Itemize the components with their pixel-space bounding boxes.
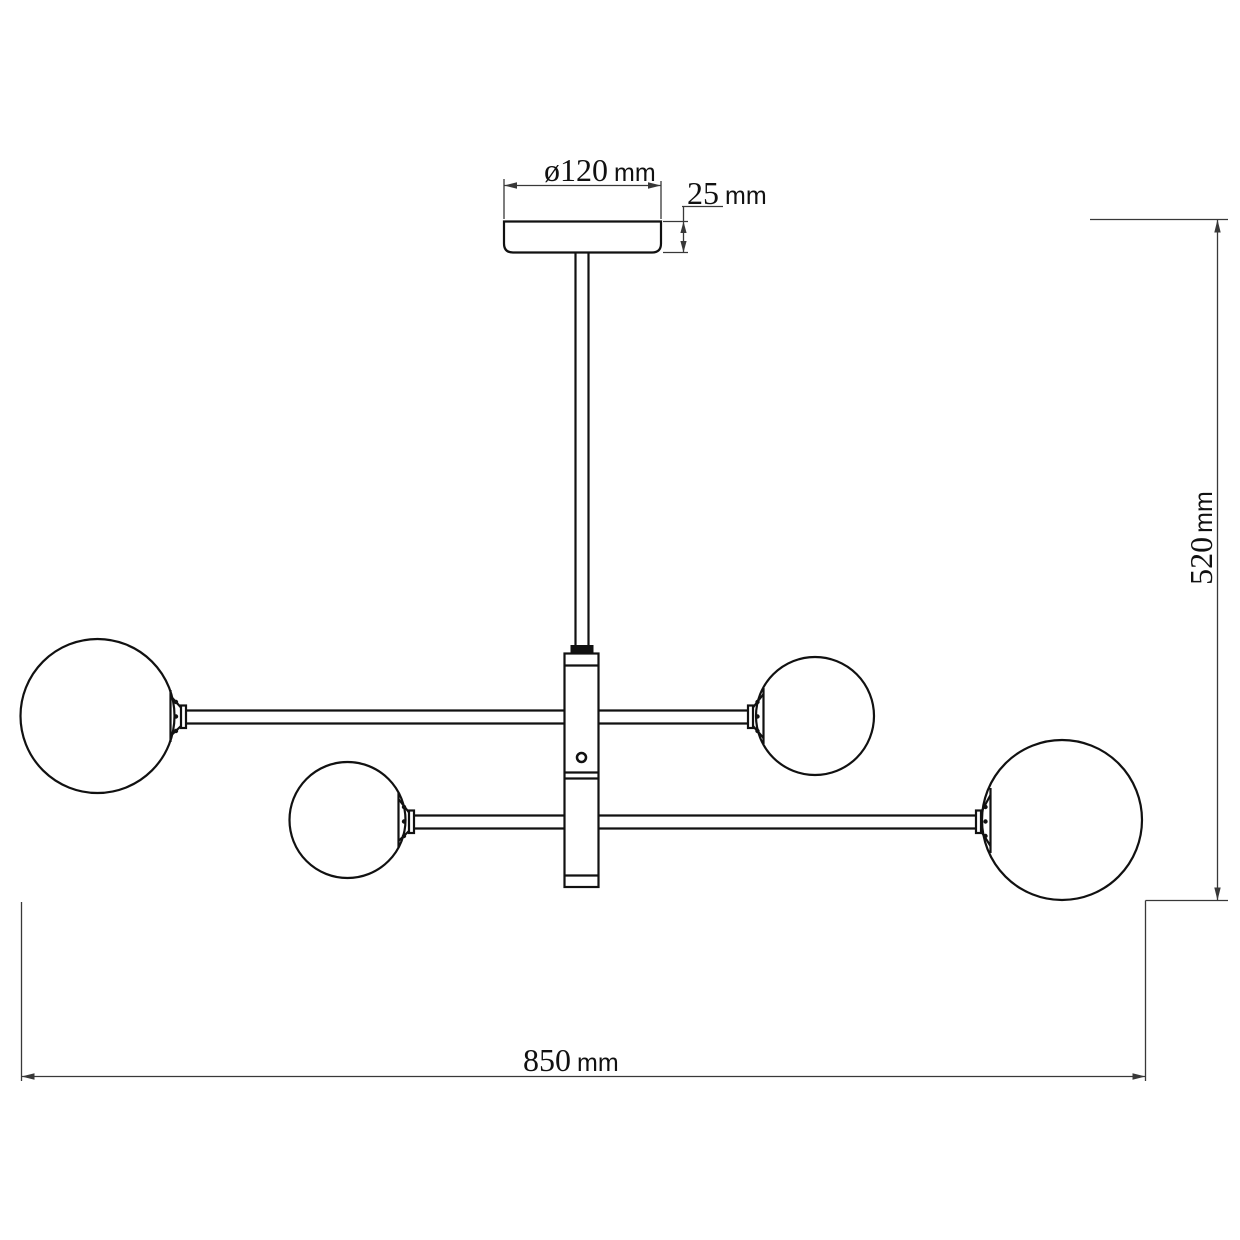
globe-upper-left-screw-2: [174, 714, 178, 718]
globe-lower-left-screw-1: [402, 805, 406, 809]
globe-upper-left-screw-1: [174, 700, 178, 704]
dim-canopy-diameter-arrow-left: [504, 182, 517, 189]
globe-upper-left-screw-3: [174, 729, 178, 733]
overall-width-label: 850mm: [523, 1042, 619, 1078]
ceiling-canopy: [504, 222, 661, 253]
dim-overall-width-arrow-left: [22, 1073, 35, 1079]
globe-upper-left: [21, 639, 187, 793]
hanging-rod: [571, 253, 594, 654]
globe-lower-left-screw-3: [402, 834, 406, 838]
dim-overall-width-arrow-right: [1133, 1073, 1146, 1079]
overall-width-unit: mm: [577, 1049, 619, 1077]
globe-upper-right: [748, 657, 874, 775]
globe-upper-right-screw-1: [755, 700, 759, 704]
globe-upper-left-cap: [181, 706, 186, 729]
fixture-outline: [21, 222, 1143, 901]
globe-upper-right-glass: [756, 657, 874, 775]
canopy-diameter-label: ø120mm: [544, 152, 656, 188]
overall-height-value: 520: [1183, 537, 1219, 585]
canopy-diameter-unit: mm: [614, 159, 656, 187]
globe-lower-left-cap: [409, 811, 414, 834]
globe-upper-left-glass: [21, 639, 175, 793]
arm-upper: [186, 711, 750, 724]
central-hub: [565, 654, 599, 888]
dim-canopy-height: [663, 207, 723, 253]
dim-canopy-height-arrow-up: [680, 222, 686, 234]
dim-overall-height-arrow-up: [1214, 220, 1220, 233]
hub-body: [565, 654, 599, 888]
globe-lower-right-screw-2: [983, 819, 987, 823]
dimension-annotations: [22, 179, 1229, 1081]
globe-lower-left-screw-2: [402, 819, 406, 823]
globe-lower-right-screw-1: [983, 805, 987, 809]
globe-lower-right-glass: [982, 740, 1142, 900]
overall-width-value: 850: [523, 1042, 571, 1078]
canopy-diameter-value: ø120: [544, 152, 608, 188]
dimension-labels: ø120mm 25mm 520mm 850mm: [523, 152, 1219, 1078]
canopy-height-value: 25: [687, 175, 719, 211]
lamp-technical-drawing: ø120mm 25mm 520mm 850mm: [0, 0, 1240, 1240]
globe-lower-right: [976, 740, 1142, 900]
globe-lower-right-cap: [976, 811, 981, 834]
rod-connector: [571, 645, 594, 653]
overall-height-label: 520mm: [1183, 491, 1219, 585]
drawing-canvas: ø120mm 25mm 520mm 850mm: [0, 0, 1240, 1240]
canopy-height-unit: mm: [725, 182, 767, 210]
dim-canopy-height-arrow-down: [680, 241, 686, 253]
globe-lower-left-glass: [290, 762, 406, 878]
globe-lower-left: [290, 762, 415, 878]
arm-lower: [414, 816, 977, 829]
canopy-height-label: 25mm: [687, 175, 767, 211]
globe-upper-right-cap: [748, 706, 753, 729]
globe-upper-right-screw-3: [755, 729, 759, 733]
globe-lower-right-screw-3: [983, 834, 987, 838]
dim-overall-height-arrow-down: [1214, 888, 1220, 901]
overall-height-unit: mm: [1190, 491, 1218, 533]
globe-upper-right-screw-2: [755, 714, 759, 718]
